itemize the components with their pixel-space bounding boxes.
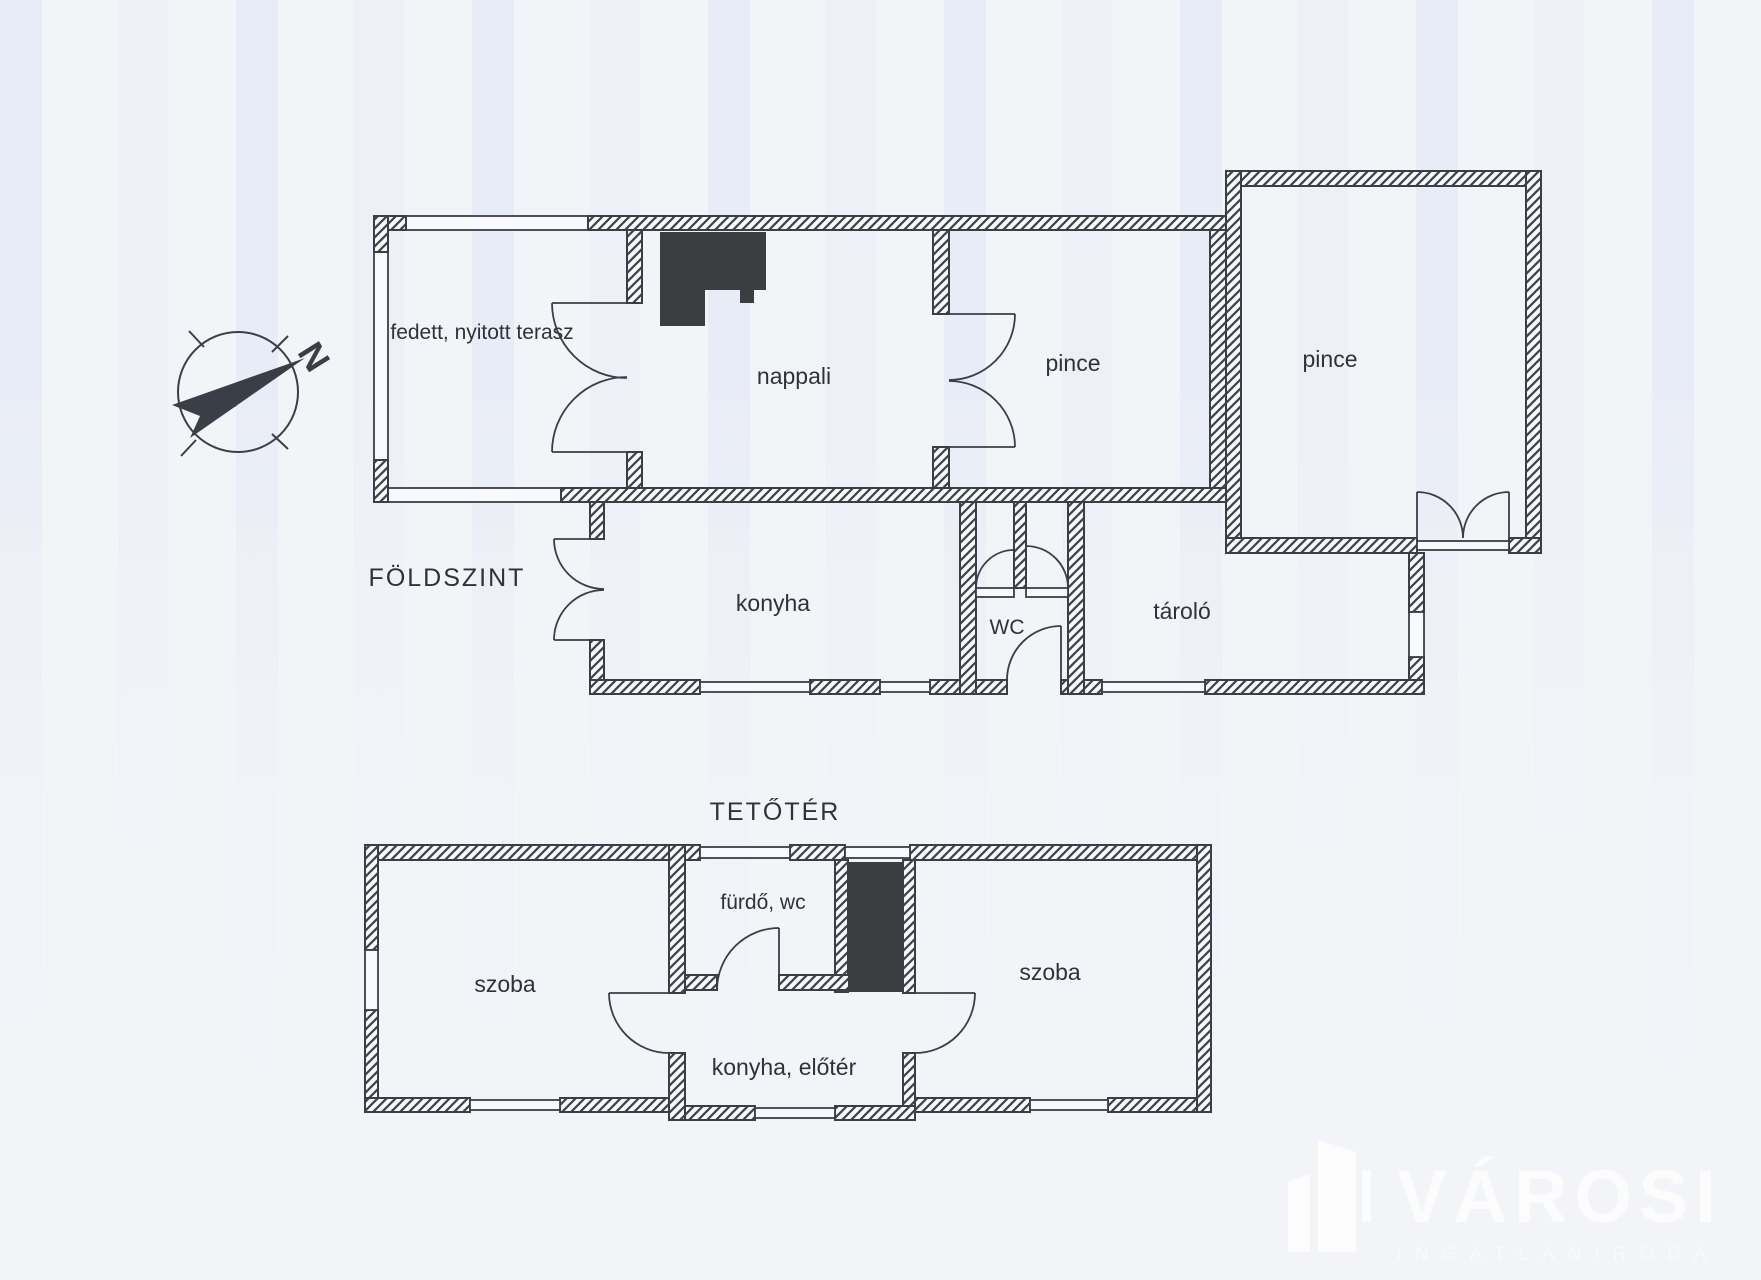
ground-floor-plan: fedett, nyitott terasz nappali pince pin… <box>369 171 1541 694</box>
staircase-block <box>660 232 766 326</box>
attic-top-window <box>845 847 910 858</box>
kitchen-window <box>700 682 810 692</box>
wall-cellar-left-right <box>1210 230 1226 488</box>
attic-room-left-door <box>609 993 669 1053</box>
attic-bottom-window-right <box>1030 1100 1108 1110</box>
attic-mid-bottom-window <box>755 1108 835 1118</box>
storage-window-bottom <box>1102 682 1205 692</box>
ground-floor-title: FÖLDSZINT <box>369 564 526 592</box>
attic-mid-bottom-b <box>835 1106 915 1120</box>
watermark-subtitle: INGATLANIRODA <box>1397 1244 1720 1265</box>
watermark-brand: VÁROSI <box>1397 1155 1723 1238</box>
room-label-bathroom: fürdő, wc <box>720 891 805 914</box>
room-label-kitchen: konyha <box>736 590 810 616</box>
cellar-right-double-door <box>1417 492 1509 538</box>
attic-bottom-left-a <box>365 1098 470 1112</box>
attic-staircase-block <box>848 862 903 992</box>
wall-storage-right-upper <box>1409 553 1424 612</box>
attic-title: TETŐTÉR <box>710 797 841 826</box>
attic-bath-door <box>717 928 779 990</box>
attic-left-wall-upper <box>365 845 378 950</box>
wall-kitchen-left-upper <box>590 502 604 539</box>
compass-north-letter: N <box>290 335 339 379</box>
attic-room-right-left-wall-upper <box>903 860 915 993</box>
room-label-wc: WC <box>990 616 1025 639</box>
room-label-cellar-right: pince <box>1303 346 1358 372</box>
vestibule-sill-right <box>1026 588 1068 597</box>
room-label-kitchen-hall: konyha, előtér <box>712 1054 857 1080</box>
attic-top-wall-b <box>790 845 845 860</box>
watermark: VÁROSI INGATLANIRODA <box>1288 1140 1723 1265</box>
attic-bottom-window-left <box>470 1100 560 1110</box>
attic-top-window <box>700 847 790 858</box>
attic-mid-left-wall-lower <box>669 1053 685 1120</box>
attic-bath-bottom-a <box>685 975 717 990</box>
wall-cellar-right-bottom-b <box>1509 538 1541 553</box>
wall-block <box>374 460 388 502</box>
wall-top-band <box>588 216 1226 230</box>
wall-vestibule-left <box>960 502 976 694</box>
wall-block <box>374 216 388 252</box>
attic-plan: TETŐTÉR szoba für <box>365 797 1211 1120</box>
room-label-living: nappali <box>757 363 831 389</box>
attic-bath-bottom-b <box>779 975 850 990</box>
attic-mid-bottom-a <box>685 1106 755 1120</box>
compass-north-icon: N <box>172 331 338 456</box>
wall-vestibule-divider <box>1014 502 1026 588</box>
attic-left-wall-lower <box>365 1010 378 1112</box>
wall-bottom-band <box>561 488 1226 502</box>
attic-bottom-right-a <box>915 1098 1030 1112</box>
watermark-building-icon <box>1288 1140 1371 1252</box>
cellar-door-sill <box>1417 541 1509 550</box>
room-label-storage: tároló <box>1153 598 1211 624</box>
wall-storage-bottom-a <box>1084 680 1102 694</box>
attic-right-wall <box>1197 845 1211 1112</box>
attic-bath-right-wall <box>835 860 848 992</box>
attic-top-wall-c <box>910 845 1210 860</box>
vestibule-sill-left <box>976 588 1014 597</box>
attic-left-window <box>365 950 378 1010</box>
wall-cellar-right-left <box>1226 171 1241 553</box>
attic-mid-left-wall-upper <box>669 845 685 993</box>
attic-bottom-right-b <box>1108 1098 1197 1112</box>
wall-living-right-upper <box>933 230 949 314</box>
wall-living-left-upper <box>627 230 642 303</box>
kitchen-entrance-double-door <box>554 539 604 640</box>
wall-kitchen-bottom-b <box>810 680 880 694</box>
attic-top-wall-a <box>365 845 700 860</box>
storage-window-right <box>1409 612 1424 657</box>
attic-room-right-left-wall-lower <box>903 1053 915 1112</box>
attic-room-right-door <box>915 993 975 1053</box>
wall-vestibule-right <box>1068 502 1084 694</box>
room-label-attic-right: szoba <box>1019 959 1081 985</box>
floor-plan-drawing: N <box>0 0 1761 1280</box>
vestibule-door-left <box>976 550 1014 588</box>
attic-bottom-left-b <box>560 1098 669 1112</box>
room-label-terrace: fedett, nyitott terasz <box>390 321 573 344</box>
wall-cellar-right-top <box>1226 171 1541 186</box>
wall-cellar-right-right <box>1526 171 1541 553</box>
wall-storage-bottom-b <box>1205 680 1424 694</box>
living-cellar-double-door <box>949 314 1015 447</box>
room-label-cellar-left: pince <box>1046 350 1101 376</box>
vestibule-door-right <box>1026 546 1068 588</box>
wall-kitchen-bottom-a <box>590 680 700 694</box>
scanned-floor-plan-page: { "page": { "background": "#f3f4f8", "in… <box>0 0 1761 1280</box>
kitchen-window <box>880 682 930 692</box>
wall-cellar-right-bottom-a <box>1226 538 1417 553</box>
room-label-attic-left: szoba <box>474 971 536 997</box>
